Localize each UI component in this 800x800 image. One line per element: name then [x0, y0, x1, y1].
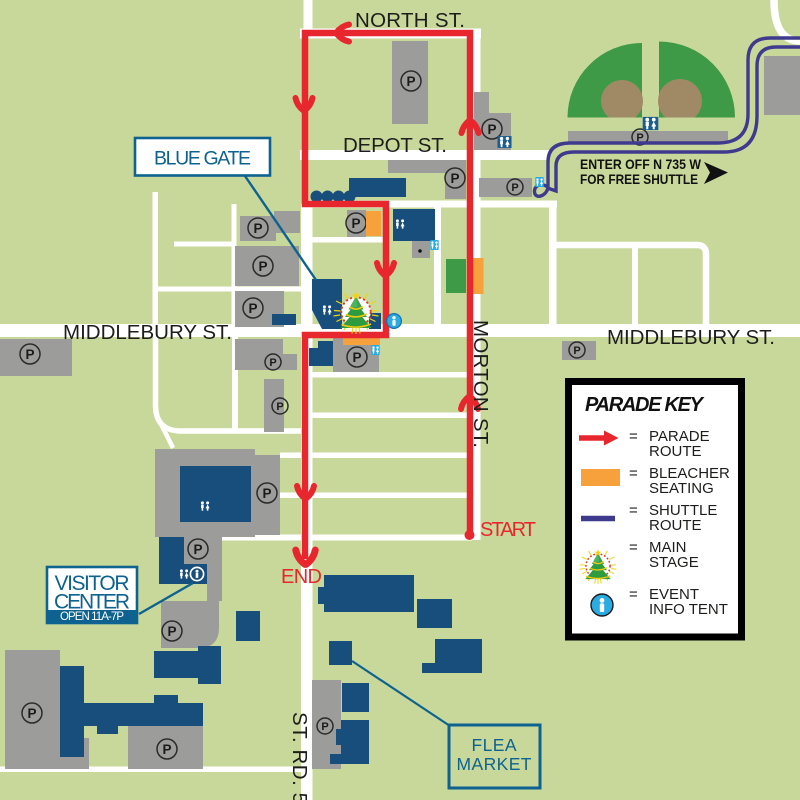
- svg-text:MORTON ST.: MORTON ST.: [469, 320, 492, 448]
- svg-text:START: START: [480, 519, 536, 541]
- svg-text:MIDDLEBURY ST.: MIDDLEBURY ST.: [607, 326, 775, 349]
- svg-text:OPEN 11A-7P: OPEN 11A-7P: [60, 611, 124, 623]
- svg-text:NORTH ST.: NORTH ST.: [355, 9, 465, 32]
- svg-text:=: =: [629, 428, 638, 445]
- svg-text:=: =: [629, 465, 638, 482]
- svg-text:FOR FREE SHUTTLE: FOR FREE SHUTTLE: [580, 171, 698, 187]
- svg-text:SEATING: SEATING: [649, 480, 714, 497]
- svg-text:FLEA: FLEA: [472, 735, 517, 755]
- svg-text:=: =: [629, 539, 638, 556]
- svg-text:=: =: [629, 502, 638, 519]
- svg-text:MARKET: MARKET: [457, 754, 532, 774]
- svg-text:=: =: [629, 586, 638, 603]
- svg-text:DEPOT ST.: DEPOT ST.: [343, 134, 447, 157]
- svg-text:MIDDLEBURY ST.: MIDDLEBURY ST.: [63, 321, 232, 344]
- svg-text:STAGE: STAGE: [649, 554, 699, 571]
- svg-text:ROUTE: ROUTE: [649, 517, 702, 534]
- svg-text:BLUE GATE: BLUE GATE: [154, 148, 251, 170]
- svg-text:PARADE KEY: PARADE KEY: [585, 394, 705, 416]
- svg-text:INFO TENT: INFO TENT: [649, 601, 728, 618]
- svg-text:ST. RD. 5: ST. RD. 5: [288, 712, 311, 800]
- svg-text:ROUTE: ROUTE: [649, 443, 702, 460]
- svg-text:ENTER OFF N 735 W: ENTER OFF N 735 W: [580, 156, 702, 172]
- svg-text:END: END: [281, 566, 322, 588]
